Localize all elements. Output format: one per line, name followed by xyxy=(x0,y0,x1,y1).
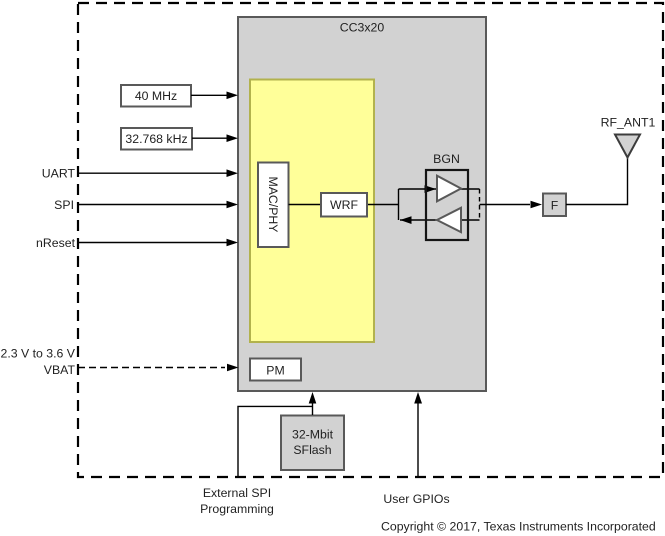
svg-text:32-Mbit: 32-Mbit xyxy=(292,428,334,442)
svg-text:Programming: Programming xyxy=(200,502,274,516)
svg-text:VBAT: VBAT xyxy=(44,363,76,377)
svg-text:40 MHz: 40 MHz xyxy=(135,89,177,103)
svg-text:External SPI: External SPI xyxy=(203,486,271,500)
svg-text:RF_ANT1: RF_ANT1 xyxy=(601,116,656,130)
svg-text:SPI: SPI xyxy=(54,198,74,212)
svg-text:UART: UART xyxy=(42,167,76,181)
svg-text:nReset: nReset xyxy=(36,236,76,250)
svg-text:2.3 V to 3.6 V: 2.3 V to 3.6 V xyxy=(0,347,75,361)
svg-text:PM: PM xyxy=(266,364,284,378)
svg-text:Copyright © 2017, Texas Instru: Copyright © 2017, Texas Instruments Inco… xyxy=(381,520,656,534)
svg-text:MAC/PHY: MAC/PHY xyxy=(266,176,280,232)
svg-text:User GPIOs: User GPIOs xyxy=(383,492,449,506)
svg-text:BGN: BGN xyxy=(433,152,460,166)
svg-text:32.768 kHz: 32.768 kHz xyxy=(125,132,187,146)
svg-text:CC3x20: CC3x20 xyxy=(340,21,385,35)
svg-text:F: F xyxy=(551,199,559,213)
svg-text:SFlash: SFlash xyxy=(293,443,331,457)
svg-text:WRF: WRF xyxy=(330,198,358,212)
